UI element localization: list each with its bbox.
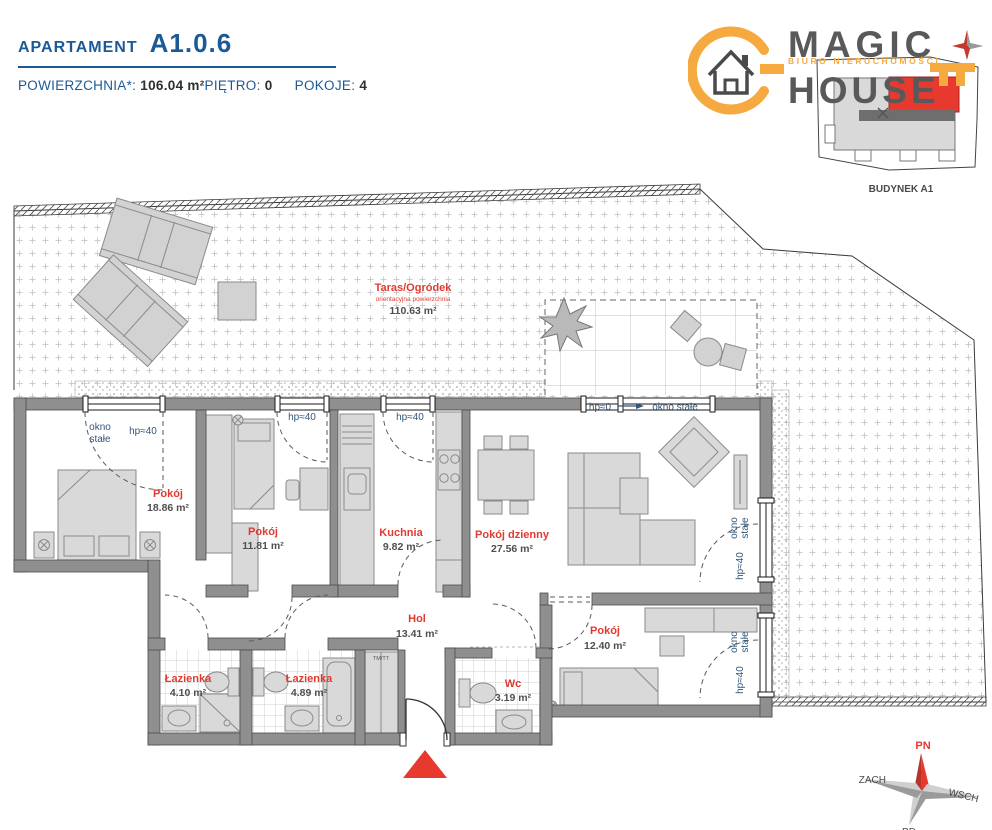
label-okno-right1: okno <box>729 517 740 539</box>
compass-east: WSCH <box>947 787 979 805</box>
label-hp40-right2: hp≈40 <box>735 666 746 694</box>
area-value: 106.04 m² <box>140 78 204 93</box>
logo-word-house: HOUSE <box>788 70 940 111</box>
entrance-arrow <box>403 750 447 778</box>
label-stale-right2: stałe <box>740 631 751 653</box>
gravel-strip-right <box>772 390 789 702</box>
apartment-label: APARTAMENT <box>18 39 138 56</box>
fence-hatch-bottom <box>772 697 986 706</box>
apartment-stats: POWIERZCHNIA*: 106.04 m²PIĘTRO: 0 POKOJE… <box>18 78 367 93</box>
window-bedroom1 <box>83 396 165 412</box>
room-name-kitchen: Kuchnia <box>379 527 423 539</box>
window-bedroom3-side <box>758 613 774 697</box>
room-name-bedroom2: Pokój <box>248 526 278 538</box>
compass-north: PN <box>915 740 930 752</box>
logo-tagline: BIURO NIERUCHOMOŚCI <box>788 55 940 66</box>
terrace-name: Taras/Ogródek <box>375 282 453 294</box>
room-area-bath2: 4.89 m² <box>291 687 328 699</box>
apartment-id: A1.0.6 <box>150 28 233 58</box>
room-area-bedroom2: 11.81 m² <box>242 540 284 552</box>
closet-label: TM/TT <box>373 656 390 662</box>
room-area-bedroom1: 18.86 m² <box>147 502 190 514</box>
room-area-bath1: 4.10 m² <box>170 687 207 699</box>
compass: PN ZACH WSCH PD <box>859 740 980 830</box>
label-hp40-1: hp≈40 <box>129 426 157 437</box>
patio-table <box>694 338 722 366</box>
area-label: POWIERZCHNIA*: <box>18 78 136 93</box>
floor-value: 0 <box>265 78 273 93</box>
gravel-strip-top <box>75 381 545 397</box>
room-name-wc: Wc <box>505 678 522 690</box>
room-area-bedroom3: 12.40 m² <box>584 640 627 652</box>
room-area-kitchen: 9.82 m² <box>383 541 420 553</box>
terrace-note: orientacyjna powierzchnia <box>376 296 451 303</box>
rooms-value: 4 <box>359 78 367 93</box>
label-hp40-right1: hp≈40 <box>735 552 746 580</box>
gravel-strip-corner <box>755 381 772 397</box>
window-living-side <box>758 498 774 582</box>
window-bedroom2 <box>275 396 329 412</box>
garden-table <box>218 282 256 320</box>
room-name-bath2: Łazienka <box>286 673 333 685</box>
label-okno-stale: okno stałe <box>652 402 698 413</box>
room-name-bedroom3: Pokój <box>590 625 620 637</box>
compass-west: ZACH <box>859 775 886 786</box>
room-area-wc: 3.19 m² <box>495 692 532 704</box>
title-divider <box>18 66 336 68</box>
hall-closet <box>365 652 398 733</box>
room-name-living: Pokój dzienny <box>475 529 550 541</box>
label-stale-right1: stałe <box>740 517 751 539</box>
label-hp40-3: hp≈40 <box>396 412 424 423</box>
label-okno-1: okno <box>89 422 111 433</box>
room-area-hall: 13.41 m² <box>396 628 439 640</box>
rooms-label: POKOJE: <box>295 78 356 93</box>
terrace-patio <box>540 298 757 395</box>
logo-block: MAGIC BIURO NIERUCHOMOŚCI HOUSE BUDYNEK … <box>688 10 990 196</box>
house-icon <box>709 52 753 93</box>
page: Taras/Ogródek orientacyjna powierzchnia … <box>0 0 992 830</box>
label-stale-1: stałe <box>89 434 111 445</box>
room-area-living: 27.56 m² <box>491 543 534 555</box>
terrace-area: 110.63 m² <box>389 305 437 317</box>
label-hp0: hp≈0 <box>589 402 612 413</box>
page-title: APARTAMENTA1.0.6 <box>18 28 232 59</box>
room-name-bath1: Łazienka <box>165 673 212 685</box>
floor-label: PIĘTRO: <box>205 78 261 93</box>
room-name-hall: Hol <box>408 613 426 625</box>
room-name-bedroom1: Pokój <box>153 488 183 500</box>
building-label: BUDYNEK A1 <box>869 184 934 195</box>
label-okno-right2: okno <box>729 631 740 653</box>
sparkle-icon <box>952 30 983 60</box>
window-kitchen <box>381 396 435 412</box>
label-hp40-2: hp≈40 <box>288 412 316 423</box>
